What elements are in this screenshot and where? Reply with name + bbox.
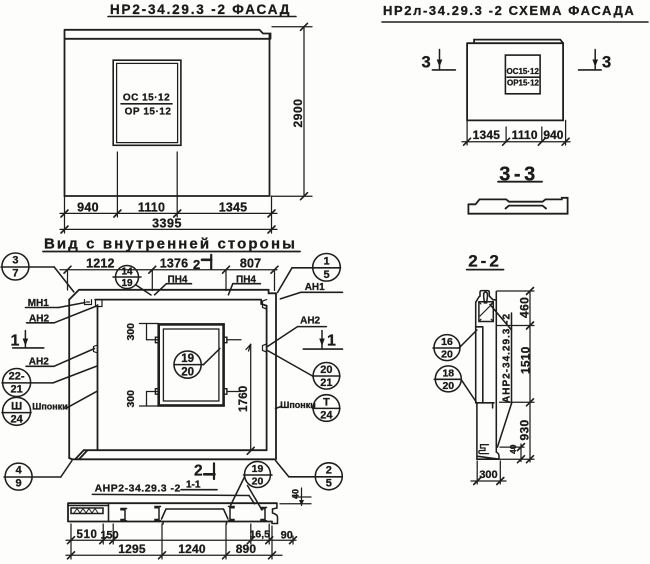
svg-text:460: 460 bbox=[518, 297, 532, 318]
svg-text:20: 20 bbox=[441, 349, 453, 361]
svg-text:20: 20 bbox=[442, 380, 454, 392]
svg-text:5: 5 bbox=[323, 269, 329, 281]
svg-text:Т: Т bbox=[323, 397, 330, 409]
svg-text:АНР2-34.29.3 -2: АНР2-34.29.3 -2 bbox=[95, 483, 181, 495]
svg-text:20: 20 bbox=[320, 364, 332, 376]
svg-text:40: 40 bbox=[508, 444, 518, 454]
svg-text:1-1: 1-1 bbox=[186, 480, 201, 491]
svg-text:300: 300 bbox=[125, 323, 137, 341]
svg-text:22-: 22- bbox=[9, 371, 25, 383]
svg-text:1110: 1110 bbox=[138, 201, 165, 215]
svg-text:19: 19 bbox=[181, 353, 194, 365]
svg-text:1510: 1510 bbox=[519, 346, 533, 374]
svg-text:890: 890 bbox=[236, 542, 257, 556]
svg-text:21: 21 bbox=[10, 384, 22, 396]
svg-text:18: 18 bbox=[442, 367, 454, 379]
svg-text:3: 3 bbox=[422, 54, 431, 72]
svg-text:14: 14 bbox=[121, 267, 133, 278]
svg-text:3: 3 bbox=[12, 255, 18, 267]
svg-text:3: 3 bbox=[602, 54, 611, 72]
svg-text:20: 20 bbox=[181, 367, 194, 379]
svg-text:1: 1 bbox=[323, 256, 329, 268]
svg-text:9: 9 bbox=[16, 478, 22, 490]
svg-text:1240: 1240 bbox=[178, 542, 206, 556]
svg-text:7: 7 bbox=[12, 268, 18, 280]
svg-text:510: 510 bbox=[77, 529, 98, 541]
svg-text:19: 19 bbox=[121, 278, 133, 289]
svg-text:16: 16 bbox=[441, 336, 453, 348]
svg-text:807: 807 bbox=[240, 257, 261, 271]
svg-text:1110: 1110 bbox=[512, 128, 538, 142]
svg-text:4: 4 bbox=[16, 465, 23, 477]
svg-text:2: 2 bbox=[326, 465, 332, 477]
svg-text:1345: 1345 bbox=[219, 201, 248, 215]
svg-text:300: 300 bbox=[479, 469, 497, 481]
svg-text:16,5: 16,5 bbox=[250, 529, 271, 541]
svg-text:1760: 1760 bbox=[238, 386, 250, 412]
svg-text:2-2: 2-2 bbox=[468, 252, 502, 271]
svg-text:1295: 1295 bbox=[118, 542, 146, 556]
svg-text:940: 940 bbox=[77, 201, 99, 215]
svg-text:21: 21 bbox=[320, 377, 332, 389]
svg-text:2900: 2900 bbox=[291, 98, 305, 127]
svg-text:930: 930 bbox=[518, 420, 532, 441]
svg-text:Ш: Ш bbox=[11, 401, 22, 413]
svg-text:1: 1 bbox=[327, 333, 336, 350]
svg-text:НР2л-34.29.3 -2 СХЕМА ФАСАДА: НР2л-34.29.3 -2 СХЕМА ФАСАДА bbox=[383, 3, 635, 18]
svg-text:АН2: АН2 bbox=[300, 316, 320, 327]
svg-text:300: 300 bbox=[125, 390, 137, 408]
svg-text:2: 2 bbox=[194, 463, 203, 480]
svg-text:90: 90 bbox=[281, 530, 293, 542]
svg-text:20: 20 bbox=[252, 476, 264, 488]
svg-text:150: 150 bbox=[100, 530, 118, 542]
svg-text:ОР 15·12: ОР 15·12 bbox=[125, 107, 172, 118]
svg-text:Шпонки: Шпонки bbox=[280, 400, 315, 410]
svg-text:24: 24 bbox=[10, 414, 23, 426]
svg-text:940: 940 bbox=[543, 128, 563, 142]
svg-text:19: 19 bbox=[252, 463, 264, 475]
svg-text:АН1: АН1 bbox=[305, 282, 325, 293]
svg-text:ОР15·12: ОР15·12 bbox=[507, 79, 540, 88]
svg-text:24: 24 bbox=[320, 410, 333, 422]
svg-text:1: 1 bbox=[11, 333, 20, 350]
svg-text:5: 5 bbox=[326, 478, 332, 490]
svg-text:2: 2 bbox=[193, 257, 200, 272]
svg-text:НР2-34.29.3 -2 ФАСАД: НР2-34.29.3 -2 ФАСАД bbox=[110, 2, 291, 17]
svg-text:1212: 1212 bbox=[86, 257, 115, 271]
svg-text:40: 40 bbox=[291, 489, 301, 499]
svg-text:1376: 1376 bbox=[160, 257, 189, 271]
svg-text:ОС 15·12: ОС 15·12 bbox=[123, 93, 170, 104]
svg-text:Вид с внутренней стороны: Вид с внутренней стороны bbox=[44, 236, 297, 253]
svg-text:Шпонки: Шпонки bbox=[32, 402, 67, 412]
svg-text:1345: 1345 bbox=[473, 128, 501, 142]
svg-text:3395: 3395 bbox=[152, 217, 182, 231]
svg-text:ОС15·12: ОС15·12 bbox=[506, 67, 539, 76]
